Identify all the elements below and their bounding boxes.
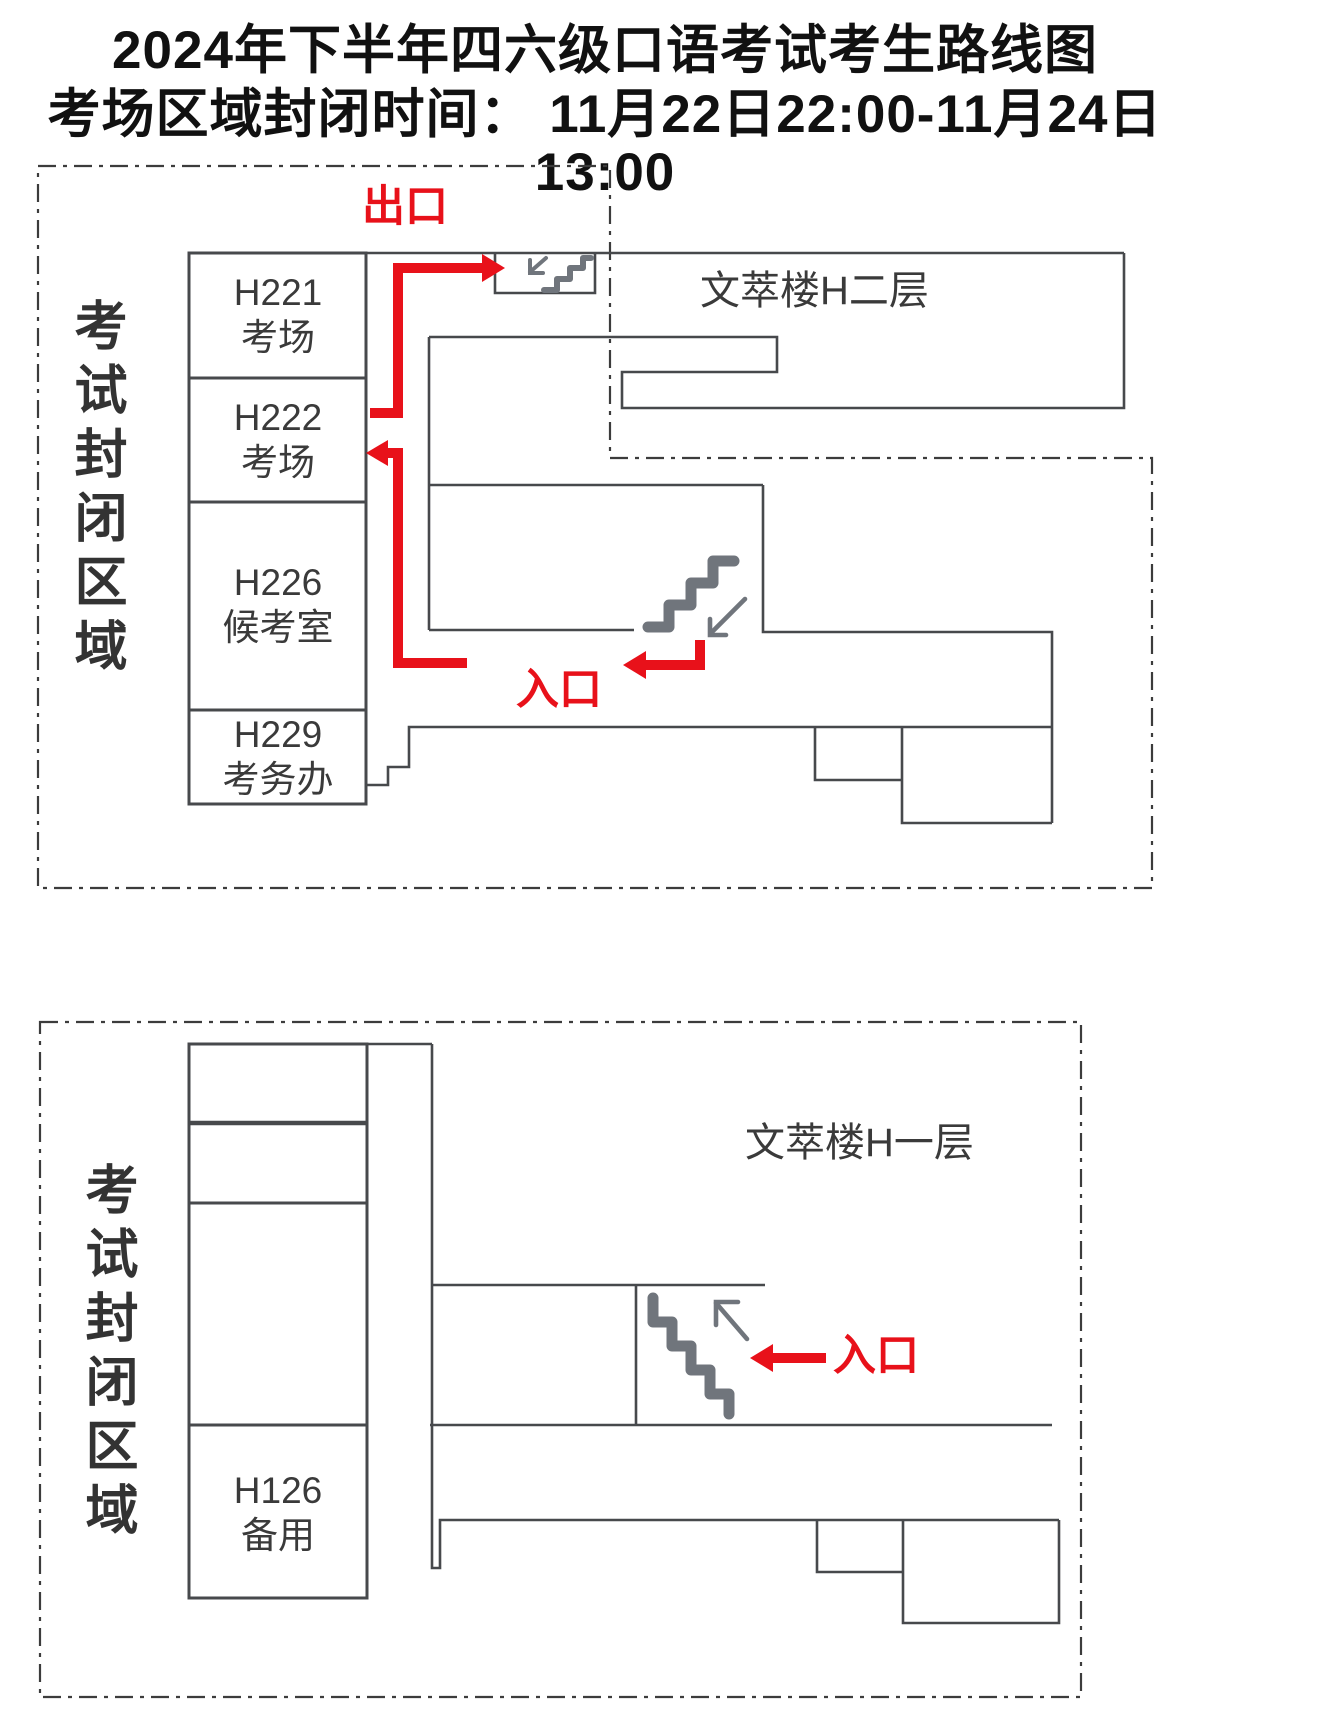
room-h222-id: H222	[189, 395, 367, 440]
room-h126-id: H126	[189, 1468, 367, 1513]
route-from-stairs-arrow	[623, 640, 700, 679]
room-h229-name: 考务办	[189, 757, 367, 802]
floor1-entrance-label: 入口	[833, 1334, 919, 1378]
room-h226-name: 候考室	[189, 605, 367, 650]
exit-stairs-icon	[530, 258, 591, 290]
room-h126-name: 备用	[189, 1513, 367, 1558]
room-h126: H126 备用	[189, 1468, 367, 1558]
room-h229: H229 考务办	[189, 712, 367, 802]
route-exit-path	[370, 254, 505, 413]
route-exit-arrowhead	[482, 254, 505, 282]
room-h222-name: 考场	[189, 440, 367, 485]
floor2-closed-zone-label: 考试封闭区域	[69, 298, 123, 682]
route-floor1-entrance-arrow	[750, 1344, 826, 1372]
arrow-up-left-icon	[716, 1302, 747, 1339]
route-entrance-arrowhead	[366, 440, 388, 466]
room-h226: H226 候考室	[189, 560, 367, 650]
room-h229-id: H229	[189, 712, 367, 757]
floorplan-linework	[0, 0, 1323, 1725]
floor2-building-label: 文萃楼H二层	[700, 258, 929, 316]
room-h221: H221 考场	[189, 270, 367, 360]
floor1-closed-zone-label: 考试封闭区域	[80, 1162, 134, 1546]
floor2-stairs-icon	[648, 561, 734, 627]
arrow-down-left-icon	[710, 599, 745, 635]
room-h221-id: H221	[189, 270, 367, 315]
floor2-entrance-label: 入口	[516, 668, 602, 712]
floor2-exit-label: 出口	[362, 185, 448, 229]
room-h226-id: H226	[189, 560, 367, 605]
exam-route-map: 2024年下半年四六级口语考试考生路线图 考场区域封闭时间： 11月22日22:…	[0, 0, 1323, 1725]
room-h221-name: 考场	[189, 315, 367, 360]
room-h222: H222 考场	[189, 395, 367, 485]
floor1-building-label: 文萃楼H一层	[745, 1110, 974, 1168]
